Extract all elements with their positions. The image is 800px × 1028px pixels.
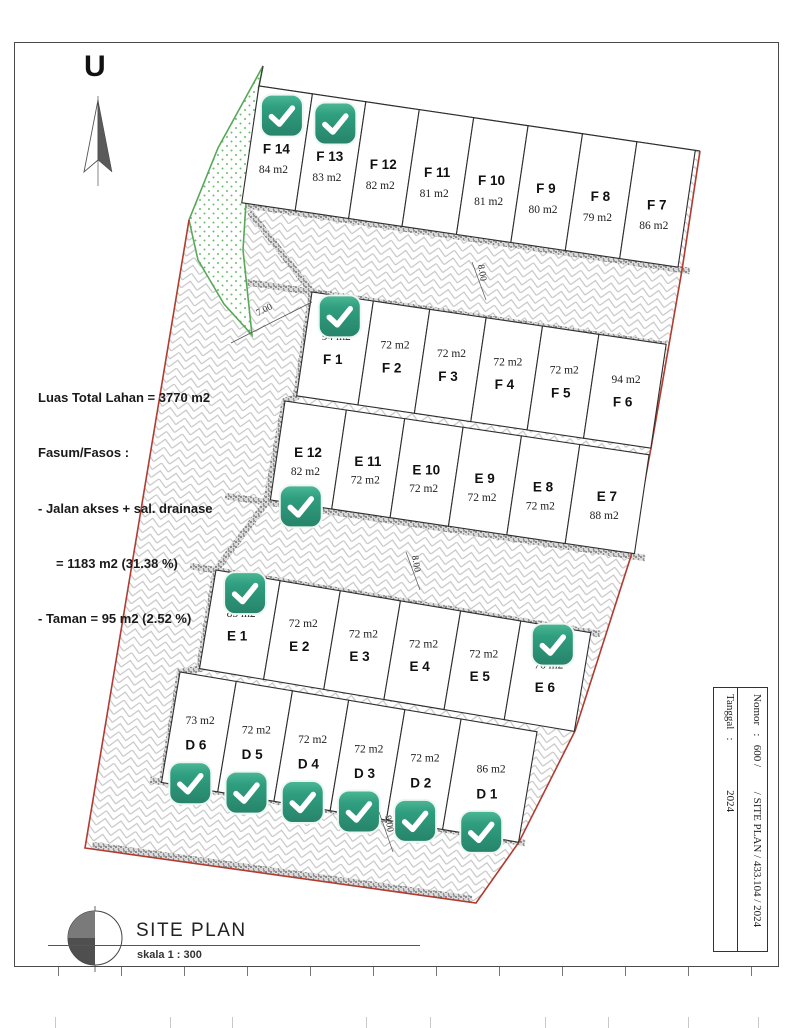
page-bottom-tick <box>688 1017 689 1028</box>
frame-tick <box>751 967 752 976</box>
title-block-tanggal: Tanggal : 2024 <box>716 694 736 946</box>
page-bottom-tick <box>232 1017 233 1028</box>
legend-title: SITE PLAN <box>136 920 247 942</box>
frame-tick <box>436 967 437 976</box>
frame-tick <box>373 967 374 976</box>
page-bottom-tick <box>430 1017 431 1028</box>
page-bottom-tick <box>170 1017 171 1028</box>
title-block-divider <box>737 688 738 951</box>
info-line: - Jalan akses + sal. drainase <box>38 500 268 518</box>
frame-tick <box>688 967 689 976</box>
north-label: U <box>84 50 106 84</box>
frame-tick <box>58 967 59 976</box>
frame-tick <box>562 967 563 976</box>
title-block: Nomor : 600 / / SITE PLAN / 433.104 / 20… <box>713 687 768 952</box>
site-plan-page: F 1484 m2F 1383 m2F 1282 m2F 1181 m2F 10… <box>0 0 800 1028</box>
page-bottom-tick <box>758 1017 759 1028</box>
frame-tick <box>184 967 185 976</box>
frame-tick <box>247 967 248 976</box>
page-bottom-tick <box>608 1017 609 1028</box>
legend-rule <box>48 945 420 946</box>
info-line: Luas Total Lahan = 3770 m2 <box>38 389 268 407</box>
page-bottom-tick <box>366 1017 367 1028</box>
frame-tick <box>310 967 311 976</box>
title-block-nomor: Nomor : 600 / / SITE PLAN / 433.104 / 20… <box>741 694 763 946</box>
page-bottom-tick <box>545 1017 546 1028</box>
frame-tick <box>499 967 500 976</box>
legend-scale: skala 1 : 300 <box>137 949 202 961</box>
land-info-block: Luas Total Lahan = 3770 m2 Fasum/Fasos :… <box>38 352 268 666</box>
info-line: - Taman = 95 m2 (2.52 %) <box>38 610 268 628</box>
page-bottom-tick <box>55 1017 56 1028</box>
frame-tick <box>625 967 626 976</box>
frame-tick <box>121 967 122 976</box>
info-line: = 1183 m2 (31.38 %) <box>38 555 268 573</box>
info-line: Fasum/Fasos : <box>38 444 268 462</box>
